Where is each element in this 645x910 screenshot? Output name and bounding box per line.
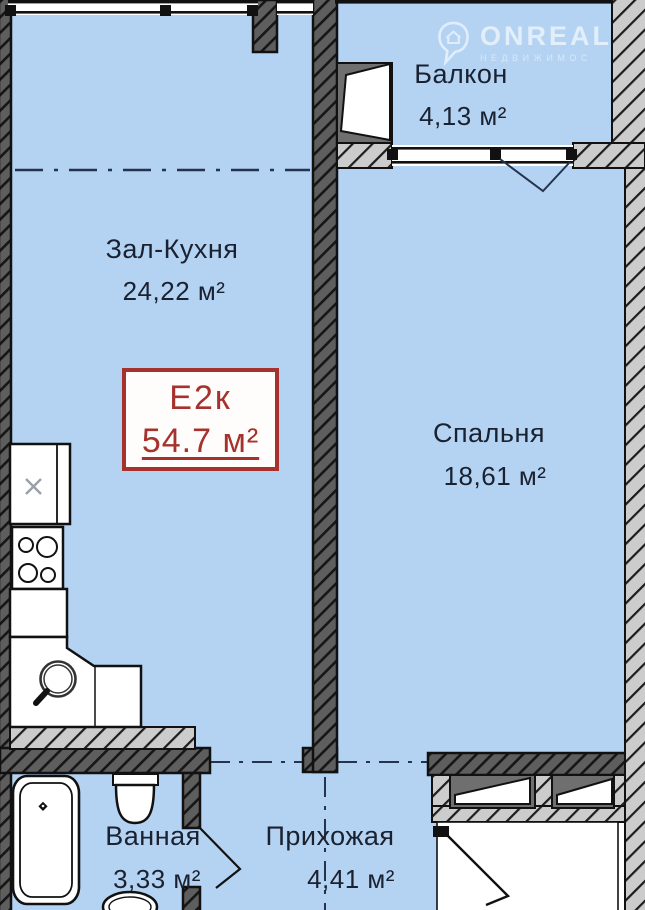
apartment-type-badge: Е2к 54.7 м² (122, 368, 279, 471)
floor-plan: ONREAL НЕДВИЖИМОС Е2к 54.7 м² Зал-Кухня … (0, 0, 645, 910)
entrance-area (433, 822, 618, 910)
apartment-total-area: 54.7 м² (142, 422, 259, 461)
door-hinge-block (433, 826, 449, 837)
fridge-symbol (10, 444, 70, 524)
room-label-bathroom: Ванная (105, 823, 200, 850)
room-label-bedroom: Спальня (433, 420, 545, 447)
kitchen-cabinet-symbol (10, 589, 67, 637)
room-label-living-kitchen: Зал-Кухня (106, 236, 239, 263)
room-area-living-kitchen: 24,22 м² (123, 278, 226, 304)
floor-plan-drawing (0, 0, 645, 910)
balcony-railing (335, 0, 612, 4)
room-area-hallway: 4,41 м² (307, 866, 395, 892)
room-label-balcony: Балкон (414, 61, 508, 88)
balcony-door (337, 63, 392, 143)
wardrobe-cells (450, 775, 614, 808)
apartment-type: Е2к (169, 379, 231, 418)
room-label-hallway: Прихожая (265, 823, 394, 850)
room-area-balcony: 4,13 м² (419, 103, 507, 129)
room-area-bathroom: 3,33 м² (113, 866, 201, 892)
room-area-bedroom: 18,61 м² (444, 463, 547, 489)
stove-symbol (12, 527, 63, 589)
bathtub-symbol (13, 776, 79, 904)
